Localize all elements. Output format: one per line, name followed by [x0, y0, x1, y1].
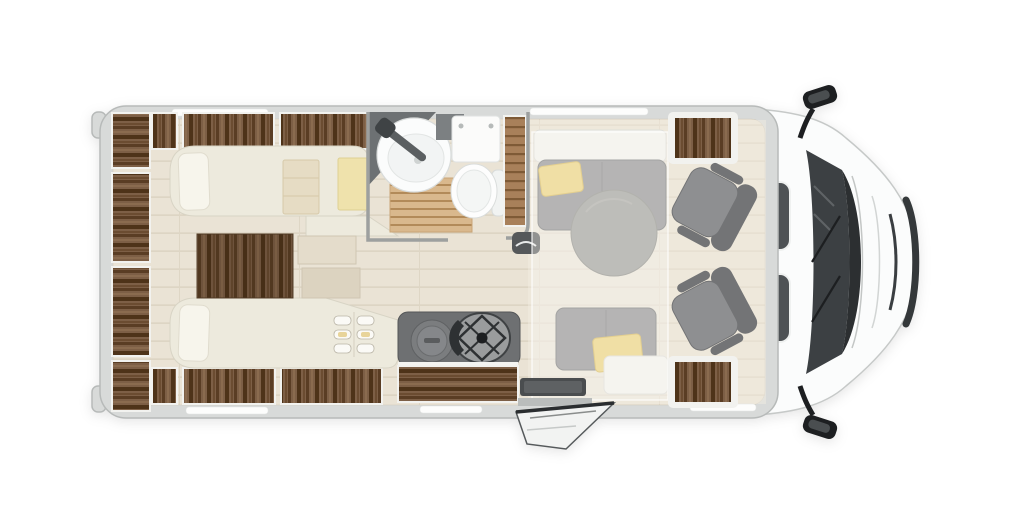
- place-settings-decor: [334, 312, 374, 357]
- floorplan-canvas: [0, 0, 1024, 524]
- pillow-bottom-bed: [178, 304, 210, 361]
- rear-wardrobes: [112, 113, 150, 411]
- drop-down-bed-overlay: [532, 132, 668, 400]
- kitchen: [398, 312, 520, 402]
- overhead-cabinets-top: [152, 113, 377, 149]
- toilet: [451, 164, 505, 218]
- overhead-cabinets-bottom: [152, 368, 382, 404]
- floorplan-image: [0, 0, 1024, 524]
- cabinet-cab-bottom: [674, 361, 732, 403]
- kitchen-sink: [411, 320, 453, 362]
- sink-lid-handle: [424, 338, 440, 343]
- pillow-top-bed: [178, 152, 210, 210]
- cabinet-cab-top: [674, 117, 732, 159]
- towel-yellow: [338, 158, 368, 210]
- window-bottom-rear: [186, 407, 268, 414]
- burner-icon: [477, 333, 488, 344]
- kitchen-base-cabinet: [398, 366, 518, 402]
- open-entrance-door: [516, 403, 614, 449]
- window-top-dinette: [530, 108, 648, 115]
- window-bottom-kitchen: [420, 406, 482, 413]
- hob: [449, 313, 510, 363]
- step-box-lower: [302, 268, 360, 298]
- mirror-cabinet: [452, 116, 500, 162]
- dinette: [532, 130, 668, 400]
- washroom-tall-cabinet: [504, 116, 526, 226]
- folded-blanket: [283, 160, 319, 214]
- step-box-upper: [298, 236, 356, 264]
